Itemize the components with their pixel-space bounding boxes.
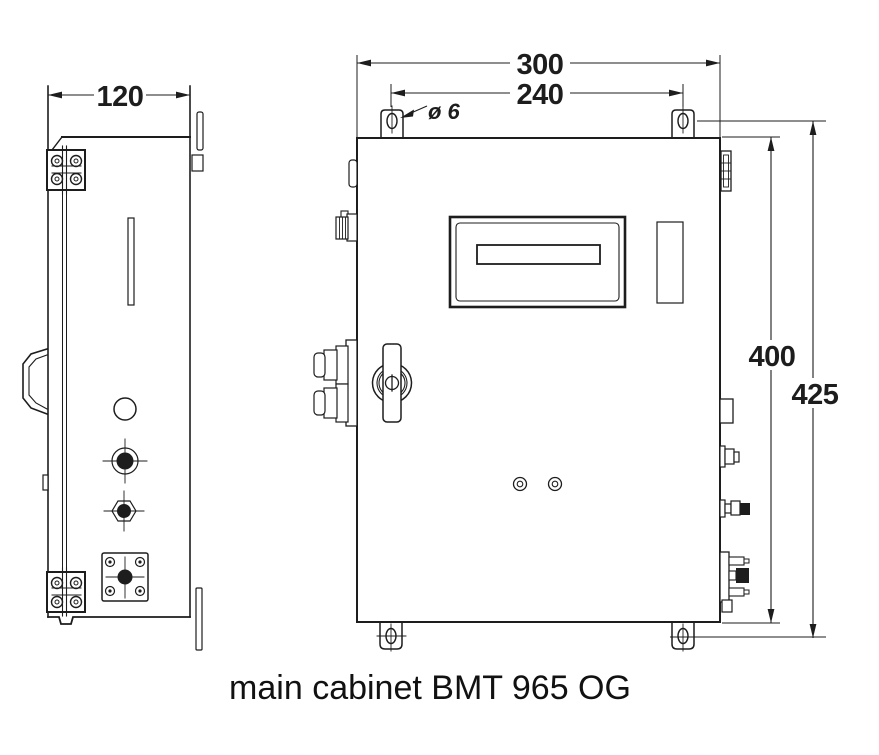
front-view	[314, 106, 750, 651]
side-view	[23, 86, 203, 650]
arrow-left-icon	[391, 90, 405, 97]
dimension-side-width: 120	[48, 80, 190, 113]
right-edge-tab	[720, 399, 733, 423]
side-top-chamfer	[52, 137, 62, 150]
rear-bracket-bottom	[196, 588, 202, 650]
hinge-bottom	[47, 568, 85, 616]
arrow-left-icon	[357, 60, 371, 67]
technical-drawing: 120 300 240 ø 6	[0, 0, 879, 755]
arrow-right-icon	[176, 92, 190, 99]
cable-gland	[314, 384, 348, 422]
mount-tab-bottom-right	[672, 620, 694, 651]
mount-tab-bottom-left	[377, 620, 406, 651]
mount-tab-top-right	[672, 106, 694, 140]
right-connector-1	[720, 446, 739, 467]
dim-body-height-label: 400	[749, 341, 796, 373]
arrow-left-icon	[48, 92, 62, 99]
arrow-down-icon	[768, 609, 775, 623]
drawing-caption: main cabinet BMT 965 OG	[229, 669, 631, 707]
hinge-top	[47, 146, 85, 194]
side-bottom-edge	[48, 617, 190, 624]
dim-side-width-label: 120	[97, 81, 144, 113]
side-flange-plate	[102, 553, 148, 601]
arrow-right-icon	[706, 60, 720, 67]
arrow-down-icon	[810, 624, 817, 638]
arrow-up-icon	[768, 137, 775, 151]
left-edge-tab	[349, 160, 357, 187]
side-wall-strip	[128, 218, 134, 305]
side-connector-hex	[104, 491, 144, 531]
dim-hole-spacing-label: 240	[517, 79, 564, 111]
drawing-page: 120 300 240 ø 6	[0, 0, 879, 755]
right-connector-2	[720, 500, 750, 517]
arrow-up-icon	[810, 121, 817, 135]
arrow-right-icon	[669, 90, 683, 97]
dimension-front-width: 300	[357, 48, 720, 81]
right-connector-block	[720, 552, 749, 612]
cable-gland	[314, 346, 348, 384]
side-hole	[114, 398, 136, 420]
right-edge-hinge	[721, 151, 731, 191]
mount-tab-top-left	[381, 106, 403, 140]
dim-overall-height-label: 425	[792, 379, 839, 411]
knurled-connector	[336, 211, 357, 241]
dimension-overall-height: 425	[785, 121, 845, 638]
door-handle	[23, 349, 47, 414]
rear-bracket-top	[192, 112, 203, 171]
dimension-hole-diameter: ø 6	[400, 99, 461, 124]
cable-gland-block	[314, 340, 357, 426]
side-connector-round	[103, 439, 147, 483]
door-face-tab	[43, 475, 48, 490]
dim-front-width-label: 300	[517, 49, 564, 81]
dim-hole-diameter-label: ø 6	[428, 99, 461, 124]
